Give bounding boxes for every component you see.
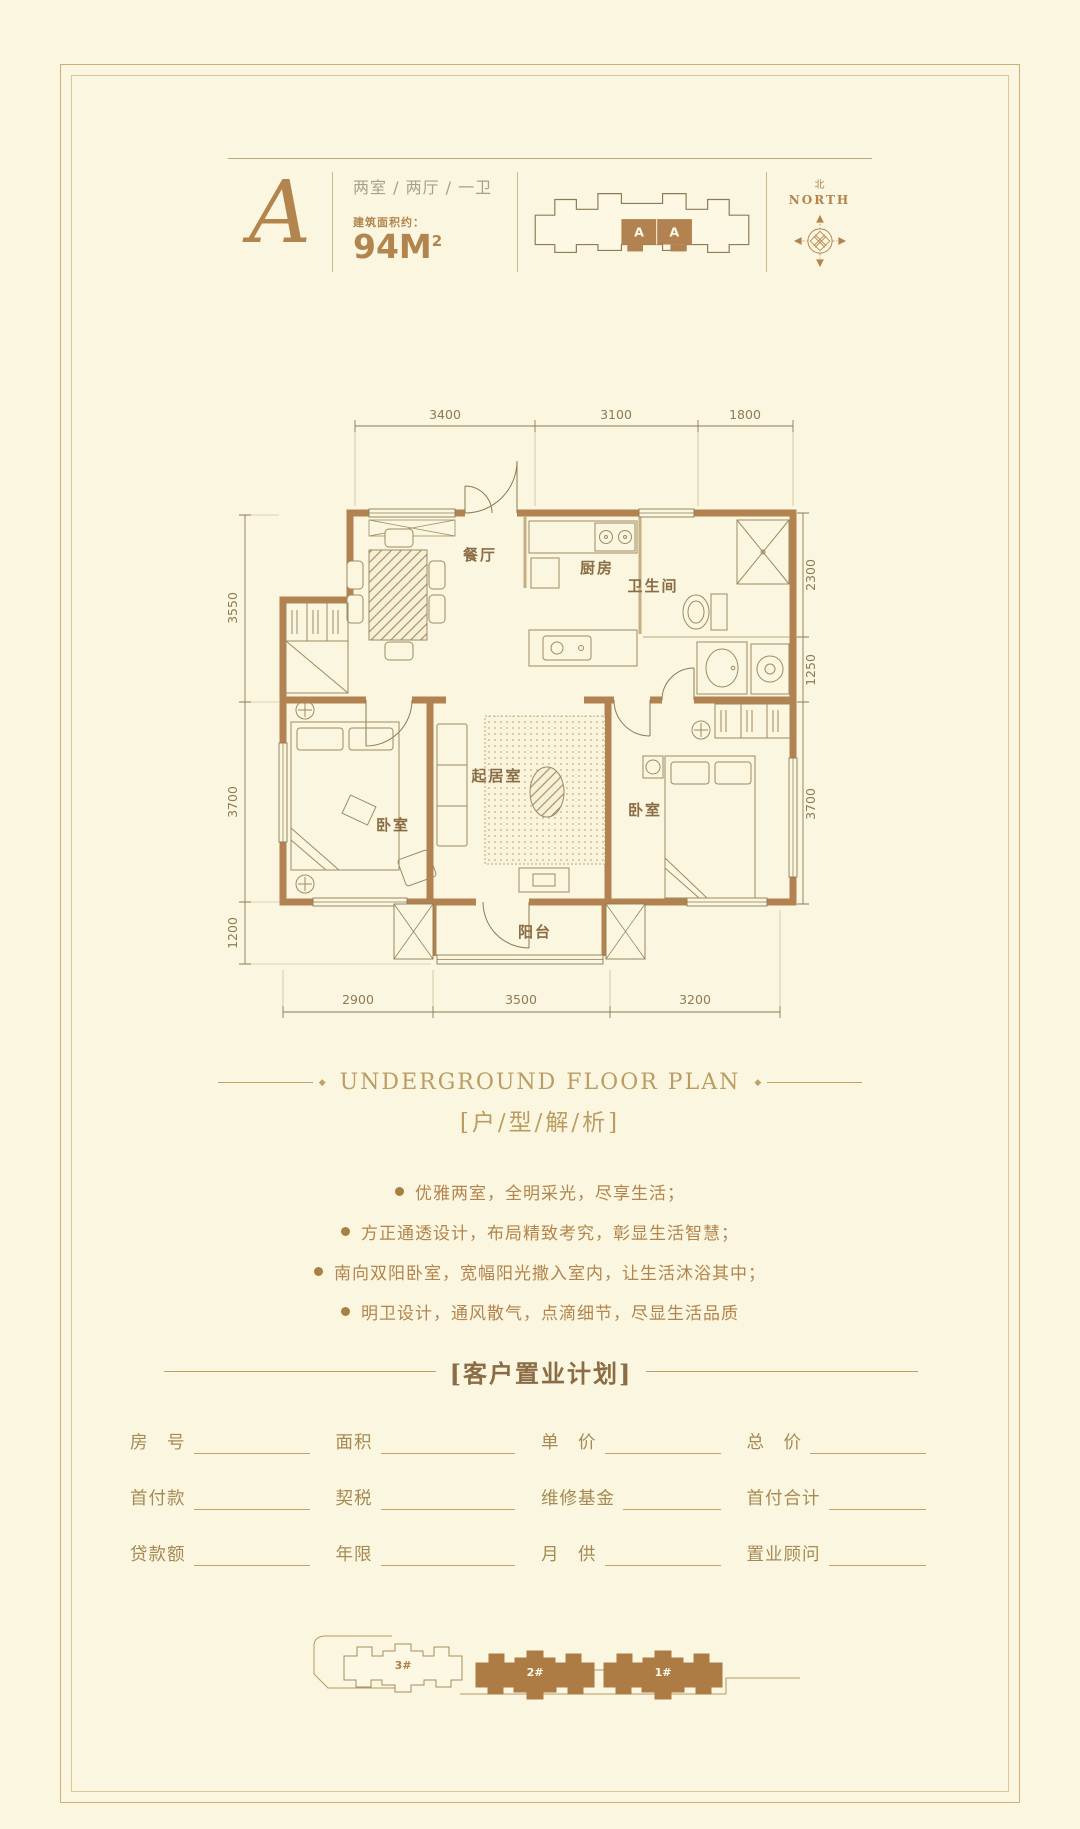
form-rule-right — [646, 1371, 918, 1372]
kitchen-counter — [529, 521, 637, 666]
unit-info: 两室 / 两厅 / 一卫 建筑面积约： 94M2 — [333, 168, 517, 274]
analysis-title-row: ◆ UNDERGROUND FLOOR PLAN ◆ — [0, 1070, 1080, 1095]
area-sup: 2 — [432, 232, 442, 250]
room-balcony: 阳台 — [518, 923, 552, 941]
bedroom-right-door — [614, 700, 650, 736]
brochure-page: A 两室 / 两厅 / 一卫 建筑面积约： 94M2 A A 北 NORTH — [0, 0, 1080, 1829]
dim-right-2: 1250 — [803, 654, 818, 686]
analysis-title-en: UNDERGROUND FLOOR PLAN — [340, 1070, 741, 1095]
form-field-down-payment: 首付款 — [130, 1485, 336, 1510]
room-dining: 餐厅 — [463, 546, 497, 564]
unit-letter: A — [228, 168, 332, 274]
bath-fixtures — [683, 520, 789, 694]
purchase-plan-section: [客户置业计划] 房 号 面积 单 价 总 价 首付款 契税 维修基金 首付合计… — [130, 1354, 952, 1597]
selling-points: 优雅两室，全明采光，尽享生活； 方正通透设计，布局精致考究，彰显生活智慧； 南向… — [0, 1171, 1080, 1331]
bath-door — [662, 668, 694, 700]
building-2-label: 2# — [527, 1666, 544, 1679]
form-field-line — [623, 1493, 721, 1510]
keyplan-unit-a1: A — [634, 226, 644, 241]
form-field-label: 房 号 — [130, 1429, 186, 1454]
selling-point-text: 优雅两室，全明采光，尽享生活； — [415, 1179, 685, 1204]
keyplan-tab — [627, 245, 643, 252]
keyplan-unit-a2: A — [669, 226, 679, 241]
form-field-label: 单 价 — [541, 1429, 597, 1454]
form-field-line — [829, 1493, 927, 1510]
form-title: [客户置业计划] — [450, 1354, 633, 1389]
form-field-line — [829, 1549, 927, 1566]
doors — [366, 461, 694, 948]
form-field-unit-price: 单 价 — [541, 1429, 747, 1454]
form-field-label: 契税 — [336, 1485, 373, 1510]
form-field-line — [381, 1437, 516, 1454]
form-field-label: 总 价 — [747, 1429, 803, 1454]
form-field-loan-years: 年限 — [336, 1541, 542, 1566]
dim-bottom-3: 3200 — [679, 992, 711, 1007]
title-rule-left — [218, 1082, 313, 1083]
compass-arrows — [793, 215, 845, 267]
room-living: 起居室 — [470, 767, 522, 785]
form-field-line — [381, 1549, 516, 1566]
building-keyplan: A A — [518, 168, 766, 274]
form-field-label: 月 供 — [541, 1541, 597, 1566]
area-number: 94M — [353, 227, 432, 266]
compass-rose-icon — [791, 212, 849, 270]
building-3-label: 3# — [395, 1659, 412, 1672]
form-field-line — [194, 1493, 310, 1510]
dining-table — [347, 529, 445, 660]
form-field-monthly-payment: 月 供 — [541, 1541, 747, 1566]
form-field-maintenance-fund: 维修基金 — [541, 1485, 747, 1510]
hall-closet — [286, 603, 348, 693]
form-field-line — [194, 1549, 310, 1566]
selling-point-text: 方正通透设计，布局精致考究，彰显生活智慧； — [361, 1219, 739, 1244]
dim-right-1: 2300 — [803, 559, 818, 591]
dim-left-3: 1200 — [225, 917, 240, 949]
furniture — [286, 520, 793, 898]
bullet-dot-icon — [341, 1307, 350, 1316]
siteplan: 3# 2# 1# — [280, 1622, 800, 1727]
bedroom-left-furniture — [291, 701, 399, 893]
unit-type: 两室 / 两厅 / 一卫 — [353, 174, 517, 198]
form-field-area: 面积 — [336, 1429, 542, 1454]
room-bedroom-right: 卧室 — [628, 801, 662, 819]
dim-top-3: 1800 — [729, 407, 761, 422]
area-value: 94M2 — [353, 230, 517, 265]
form-field-consultant: 置业顾问 — [747, 1541, 953, 1566]
form-field-label: 置业顾问 — [747, 1541, 821, 1566]
form-row: 首付款 契税 维修基金 首付合计 — [130, 1485, 952, 1510]
form-field-line — [381, 1493, 516, 1510]
form-rows: 房 号 面积 单 价 总 价 首付款 契税 维修基金 首付合计 贷款额 年限 月… — [130, 1429, 952, 1566]
header: A 两室 / 两厅 / 一卫 建筑面积约： 94M2 A A 北 NORTH — [228, 158, 872, 274]
compass-north-cn: 北 — [767, 176, 872, 191]
compass-north-en: NORTH — [767, 193, 872, 207]
room-kitchen: 厨房 — [580, 559, 614, 577]
form-field-deed-tax: 契税 — [336, 1485, 542, 1510]
bullet-dot-icon — [341, 1227, 350, 1236]
floorplan-drawing: 3400 3100 1800 3550 3700 1200 2300 1250 … — [145, 390, 825, 1050]
analysis-section: ◆ UNDERGROUND FLOOR PLAN ◆ [户/型/解/析] 优雅两… — [0, 1070, 1080, 1331]
form-field-label: 面积 — [336, 1429, 373, 1454]
compass: 北 NORTH — [767, 168, 872, 274]
dim-bottom-2: 3500 — [505, 992, 537, 1007]
form-field-label: 年限 — [336, 1541, 373, 1566]
selling-point: 南向双阳卧室，宽幅阳光撒入室内，让生活沐浴其中； — [0, 1251, 1080, 1291]
entry-door-leaf — [465, 486, 492, 513]
form-title-row: [客户置业计划] — [130, 1354, 952, 1389]
diamond-icon: ◆ — [319, 1078, 326, 1088]
selling-point-text: 南向双阳卧室，宽幅阳光撒入室内，让生活沐浴其中； — [334, 1259, 766, 1284]
dim-top-1: 3400 — [429, 407, 461, 422]
form-field-label: 维修基金 — [541, 1485, 615, 1510]
form-field-label: 贷款额 — [130, 1541, 186, 1566]
room-bath: 卫生间 — [627, 577, 678, 595]
form-field-line — [605, 1549, 721, 1566]
dim-top-2: 3100 — [600, 407, 632, 422]
form-row: 房 号 面积 单 价 总 价 — [130, 1429, 952, 1454]
building-1-label: 1# — [655, 1666, 672, 1679]
diamond-icon: ◆ — [754, 1078, 761, 1088]
bedroom-left-door — [366, 700, 412, 746]
form-field-down-total: 首付合计 — [747, 1485, 953, 1510]
form-field-room-no: 房 号 — [130, 1429, 336, 1454]
dim-right-3: 3700 — [803, 788, 818, 820]
bullet-dot-icon — [314, 1267, 323, 1276]
form-field-line — [810, 1437, 926, 1454]
selling-point: 方正通透设计，布局精致考究，彰显生活智慧； — [0, 1211, 1080, 1251]
keyplan-drawing: A A — [529, 176, 755, 272]
form-field-line — [605, 1437, 721, 1454]
analysis-title-cn: [户/型/解/析] — [0, 1103, 1080, 1137]
compass-lattice — [810, 231, 829, 250]
form-row: 贷款额 年限 月 供 置业顾问 — [130, 1541, 952, 1566]
selling-point: 明卫设计，通风散气，点滴细节，尽显生活品质 — [0, 1291, 1080, 1331]
dim-bottom-1: 2900 — [342, 992, 374, 1007]
form-field-loan-amount: 贷款额 — [130, 1541, 336, 1566]
form-field-total-price: 总 价 — [747, 1429, 953, 1454]
keyplan-tab — [670, 245, 686, 252]
dim-left-1: 3550 — [225, 592, 240, 624]
form-field-line — [194, 1437, 310, 1454]
form-rule-left — [164, 1371, 436, 1372]
selling-point-text: 明卫设计，通风散气，点滴细节，尽显生活品质 — [361, 1299, 739, 1324]
bullet-dot-icon — [395, 1187, 404, 1196]
form-field-label: 首付合计 — [747, 1485, 821, 1510]
selling-point: 优雅两室，全明采光，尽享生活； — [0, 1171, 1080, 1211]
bedroom-right-furniture — [643, 704, 793, 898]
form-field-label: 首付款 — [130, 1485, 186, 1510]
dim-left-2: 3700 — [225, 786, 240, 818]
title-rule-right — [767, 1082, 862, 1083]
room-bedroom-left: 卧室 — [376, 816, 410, 834]
